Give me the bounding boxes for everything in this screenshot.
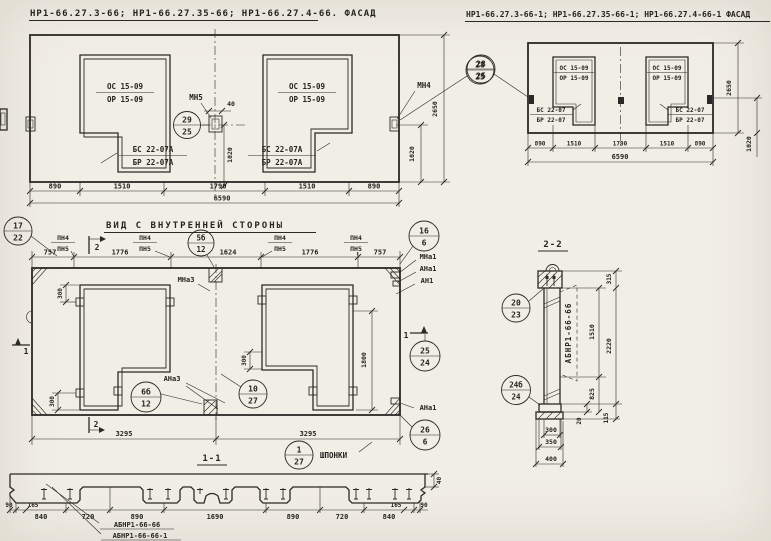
bubble-den: 24 <box>511 393 521 402</box>
section-label: 2 <box>94 420 99 429</box>
bubble-num: 28 <box>476 60 486 69</box>
window-code: ОР 15-09 <box>107 95 144 104</box>
inner-view-title: ВИД С ВНУТРЕННЕЙ СТОРОНЫ <box>106 219 284 231</box>
dim-text: 2650 <box>431 101 439 117</box>
opening-left <box>80 285 170 410</box>
bubble-num: 20 <box>511 299 521 308</box>
dim-300-c: 300 <box>241 349 262 372</box>
panel-mark-label: АБНР1-66-66 <box>114 521 160 529</box>
door-code: БС 22-07 <box>676 107 705 114</box>
bubble-den: 12 <box>196 245 205 254</box>
section-2-marker-bottom: 2 <box>89 417 105 433</box>
dim-text: 6590 <box>612 153 629 161</box>
window-code: ОС 15-09 <box>653 65 682 72</box>
anchor-marks <box>27 296 358 397</box>
dim-text: 90 <box>5 502 13 509</box>
dim-right-side: 2650 1020 <box>713 40 762 157</box>
door-mark-left: БС 22-07А БР 22-07А <box>101 145 187 167</box>
bubble-26-6: 26 6 <box>398 413 440 450</box>
dim-text: 840 <box>35 513 48 521</box>
bubble-10-27: 10 27 <box>221 374 267 408</box>
bubble-num: 16 <box>419 227 429 236</box>
inner-view: ВИД С ВНУТРЕННЕЙ СТОРОНЫ 17 22 757 1776 … <box>4 217 440 469</box>
pn-callout-3: ПН4 ПН5 <box>262 234 292 257</box>
panel-mark-label: АБНР1-66-66 <box>564 303 573 364</box>
pn4-label: ПН4 <box>139 234 151 242</box>
dim-text: 890 <box>49 183 62 191</box>
window-mark-left: ОС 15-09 ОР 15-09 <box>554 65 594 82</box>
dim-text: 1790 <box>210 183 227 191</box>
dim-row-bottom: 3295 3295 <box>29 415 403 445</box>
door-code: БС 22-07А <box>262 145 303 154</box>
section-profile <box>10 474 425 503</box>
mna3-label: МНа3 <box>178 276 195 284</box>
dim-text: 2220 <box>605 338 613 354</box>
ana3-label: АНа3 <box>164 375 181 383</box>
dim-text: 840 <box>383 513 396 521</box>
drawing-canvas: НР1-66.27.3-66; НР1-66.27.35-66; НР1-66.… <box>0 0 771 541</box>
dim-text: 890 <box>368 183 381 191</box>
dim-row-bottom: 890 1510 1790 1510 890 6590 <box>27 182 402 207</box>
opening-left <box>80 55 170 172</box>
pn4-label: ПН4 <box>350 234 362 242</box>
bubble-num: 1 <box>297 446 302 455</box>
pn-callout-4: ПН4 ПН5 <box>344 234 368 257</box>
door-code: БР 22-07 <box>537 117 566 124</box>
lifting-handle-center <box>209 116 222 132</box>
dim-text: 890 <box>695 141 706 148</box>
handle-marks <box>529 95 712 104</box>
panel-body: АБНР1-66-66 <box>544 285 577 404</box>
bubble-den: 24 <box>420 359 430 368</box>
dim-text: 400 <box>545 455 557 463</box>
section-label: 1 <box>404 331 409 340</box>
ana1-label-bottom: АНа1 <box>420 404 437 412</box>
dim-text: 6590 <box>214 195 231 203</box>
dim-text: 1800 <box>360 352 368 368</box>
door-mark-right: БС 22-07А БР 22-07А <box>248 143 330 167</box>
section-1-marker-right: 1 <box>404 326 428 340</box>
door-code: БР 22-07 <box>676 117 705 124</box>
mn5-callout: МН5 29 25 <box>174 93 212 139</box>
dim-text: 165 <box>391 502 402 509</box>
pn4-label: ПН4 <box>57 234 69 242</box>
door-code: БС 22-07 <box>537 107 566 114</box>
bubble-1-27-shponki: 1 27 ШПОНКИ <box>285 441 372 469</box>
panel-mark-label: АБНР1-66-66-1 <box>113 532 168 540</box>
ana1-label: АНа1 <box>420 265 437 273</box>
pn5-label: ПН5 <box>57 245 69 253</box>
bubble-den: 27 <box>248 397 258 406</box>
window-code: ОС 15-09 <box>289 82 326 91</box>
dim-text: 300 <box>241 355 248 366</box>
dim-text: 890 <box>535 141 546 148</box>
dim-row-bottom: 890 1510 1790 1510 890 6590 <box>525 125 716 166</box>
panel-outline <box>32 268 400 415</box>
pn5-label: ПН5 <box>139 245 151 253</box>
bubble-5b-12: 5б 12 <box>188 230 214 267</box>
bubble-den: 23 <box>511 311 521 320</box>
facade-left-title: НР1-66.27.3-66; НР1-66.27.35-66; НР1-66.… <box>30 9 377 19</box>
dim-text: 757 <box>44 249 57 257</box>
window-code: ОС 15-09 <box>560 65 589 72</box>
dim-text: 1510 <box>299 183 316 191</box>
bubble-num: 17 <box>13 222 23 231</box>
sheet-edge-mark <box>0 109 7 130</box>
bubble-den: 25 <box>182 128 192 137</box>
bubble-24b-24: 24б 24 <box>502 376 541 406</box>
shponki-label: ШПОНКИ <box>320 451 348 460</box>
dim-text: 757 <box>374 249 387 257</box>
pn-callout-2: ПН4 ПН5 <box>133 234 170 257</box>
dim-text: 350 <box>545 438 557 446</box>
window-code: ОС 15-09 <box>107 82 144 91</box>
window-mark-left: ОС 15-09 ОР 15-09 <box>96 82 154 104</box>
lifting-loop <box>546 265 559 271</box>
mna1-label: МНа1 <box>420 253 437 261</box>
dim-text: 890 <box>131 513 144 521</box>
bubble-den: 6 <box>422 239 427 248</box>
dim-text: 890 <box>287 513 300 521</box>
facade-left-view: НР1-66.27.3-66; НР1-66.27.35-66; НР1-66.… <box>26 9 494 207</box>
an1-label: АН1 <box>421 277 434 285</box>
top-anchor-block <box>538 271 562 288</box>
dim-text: 300 <box>49 396 56 407</box>
dim-text: 115 <box>603 412 610 423</box>
dim-text: 90 <box>420 502 428 509</box>
dim-1800: 1800 <box>353 308 378 413</box>
bubble-28-25: 28 25 <box>467 55 528 97</box>
bubble-num: 29 <box>182 116 192 125</box>
opening-right <box>263 55 352 172</box>
bubble-den: 6 <box>423 438 428 447</box>
dim-text: 720 <box>336 513 349 521</box>
section-1-1-title: 1-1 <box>202 454 221 464</box>
door-code: БР 22-07А <box>133 158 174 167</box>
dim-text: 40 <box>227 100 235 108</box>
corner-hatches <box>32 268 400 415</box>
dim-text: 1020 <box>745 136 753 152</box>
dim-text: 1510 <box>567 141 582 148</box>
bubble-den: 22 <box>13 234 23 243</box>
section-label: 1 <box>24 347 29 356</box>
bubble-num: 10 <box>248 385 258 394</box>
window-mark-right: ОС 15-09 ОР 15-09 <box>278 82 336 104</box>
edge-detail-marks <box>391 272 400 404</box>
dim-text: 1510 <box>588 324 596 340</box>
bubble-den: 12 <box>141 400 151 409</box>
dim-text: 1020 <box>408 146 416 162</box>
bubble-num: 24б <box>509 381 523 390</box>
blueprint-sheet: НР1-66.27.3-66; НР1-66.27.35-66; НР1-66.… <box>0 0 771 541</box>
opening-right <box>262 285 353 410</box>
dim-300-b: 300 <box>49 390 79 413</box>
dim-text: 1776 <box>302 249 319 257</box>
dim-text: 3295 <box>116 430 133 438</box>
section-2-marker-top: 2 <box>89 236 106 254</box>
window-mark-right: ОС 15-09 ОР 15-09 <box>647 65 687 82</box>
bubble-num: 25 <box>420 347 430 356</box>
section-2-2-view: 2-2 АБНР1-66-66 <box>502 240 623 467</box>
lifting-handle-right <box>390 117 399 131</box>
window-code: ОР 15-09 <box>653 75 682 82</box>
bubble-num: 6б <box>141 387 151 397</box>
panel-outline <box>30 35 399 182</box>
dim-40: 40 <box>204 100 235 114</box>
rebar-marks <box>41 488 412 499</box>
dim-text: 1790 <box>613 141 628 148</box>
door-code: БС 22-07А <box>133 145 174 154</box>
bottom-base-block <box>536 404 563 419</box>
mn5-label: МН5 <box>189 93 203 102</box>
facade-right-view: НР1-66.27.3-66-1; НР1-66.27.35-66-1; НР1… <box>465 10 770 166</box>
dim-text: 825 <box>588 388 596 400</box>
dim-text: 3295 <box>300 430 317 438</box>
window-code: ОР 15-09 <box>560 75 589 82</box>
bubble-num: 26 <box>420 426 430 435</box>
dim-text: 20 <box>576 417 583 425</box>
dim-row: 90 165 840 720 890 1690 890 720 840 165 … <box>5 487 428 521</box>
dim-text: 1510 <box>114 183 131 191</box>
pn5-label: ПН5 <box>274 245 286 253</box>
bubble-num: 5б <box>196 234 206 243</box>
bubble-den: 27 <box>294 458 304 467</box>
door-code: БР 22-07А <box>262 158 303 167</box>
dim-text: 165 <box>28 502 39 509</box>
dim-row-bottom: 300 350 400 <box>533 419 566 467</box>
section-1-marker-left: 1 <box>12 338 30 356</box>
bubble-20-23: 20 23 <box>502 289 543 322</box>
dim-text: 2650 <box>725 80 733 96</box>
bubble-den: 25 <box>476 72 486 81</box>
bubble-6b-12: 6б 12 <box>131 382 202 412</box>
dim-text: 1510 <box>660 141 675 148</box>
dim-text: 1020 <box>226 147 234 163</box>
pn5-label: ПН5 <box>350 245 362 253</box>
dim-text: 300 <box>545 426 557 434</box>
facade-right-title: НР1-66.27.3-66-1; НР1-66.27.35-66-1; НР1… <box>466 10 750 19</box>
bubble-25-24: 25 24 <box>410 334 440 371</box>
section-label: 2 <box>95 243 100 252</box>
dim-text: 1624 <box>220 249 237 257</box>
dim-text: 1776 <box>112 249 129 257</box>
window-code: ОР 15-09 <box>289 95 326 104</box>
mn4-label: МН4 <box>417 81 431 90</box>
dim-text: 300 <box>57 288 64 299</box>
section-2-2-title: 2-2 <box>543 240 562 250</box>
section-1-1-view: 1-1 40 90 165 840 720 890 1690 890 <box>5 454 443 540</box>
dim-text: 315 <box>606 273 613 284</box>
pn4-label: ПН4 <box>274 234 286 242</box>
dim-text: 1690 <box>207 513 224 521</box>
dim-text: 40 <box>436 477 443 485</box>
